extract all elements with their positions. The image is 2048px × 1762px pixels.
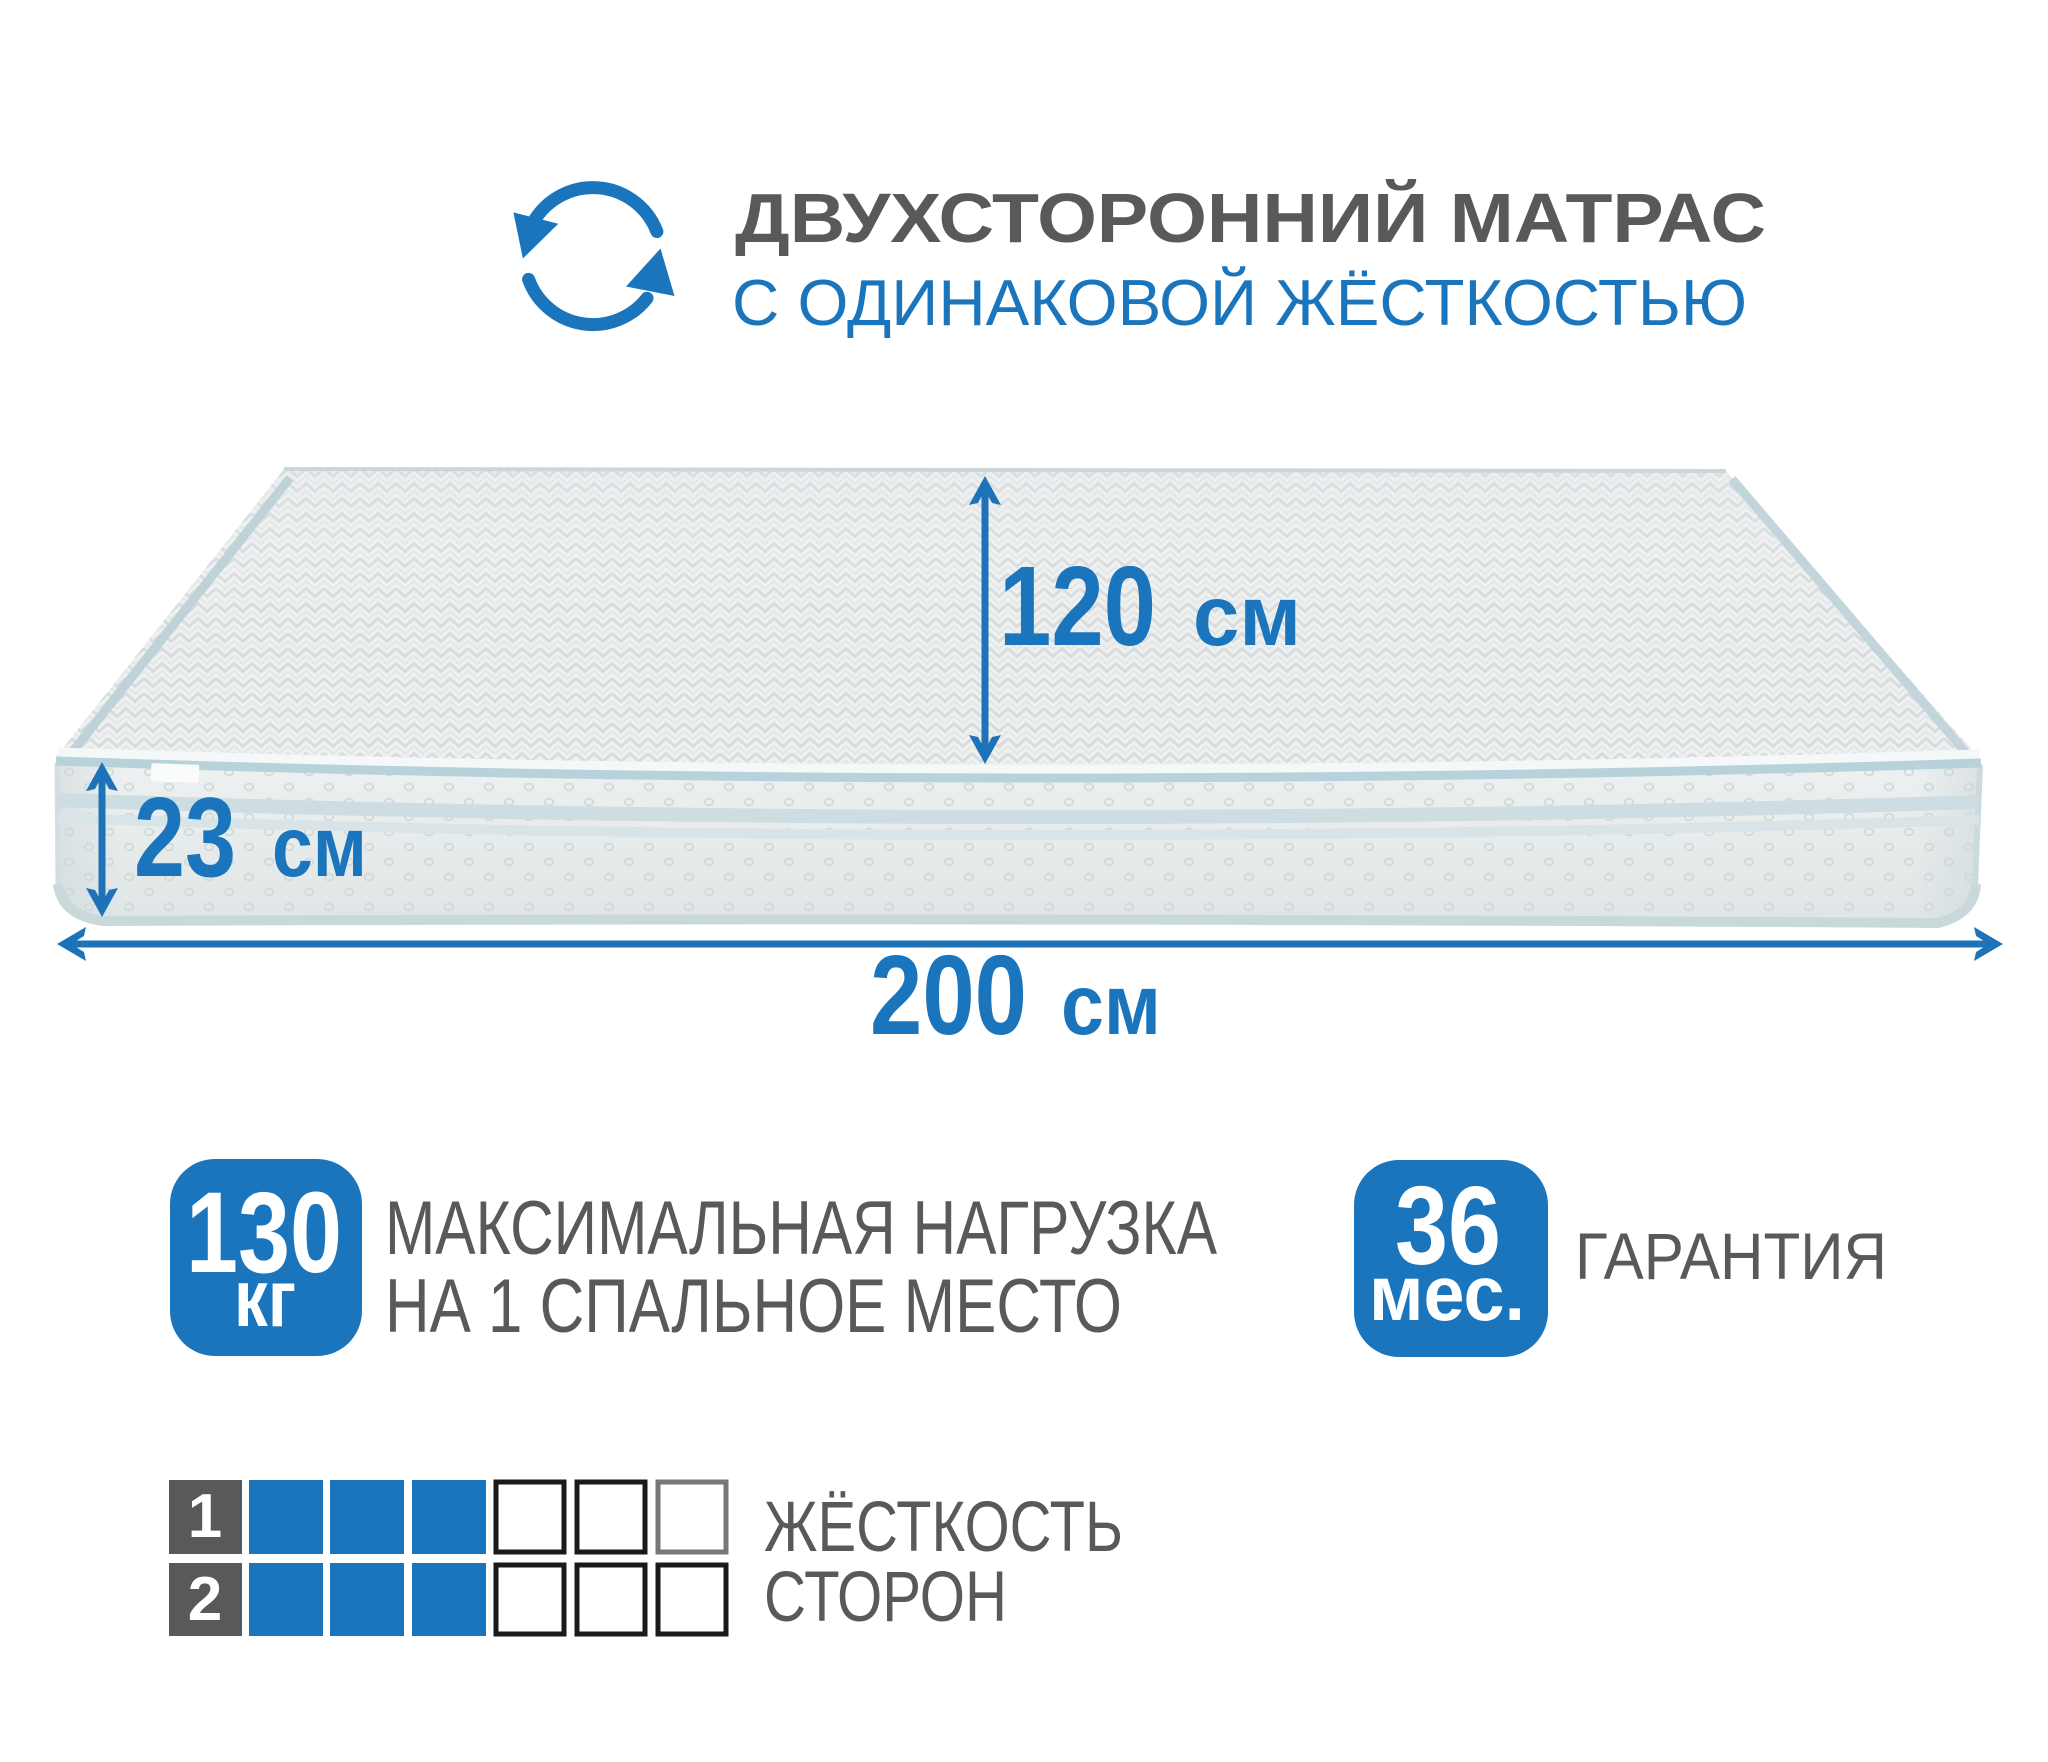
svg-text:ДВУХСТОРОННИЙ МАТРАС: ДВУХСТОРОННИЙ МАТРАС — [735, 178, 1766, 257]
svg-text:1: 1 — [188, 1482, 222, 1551]
svg-text:МАКСИМАЛЬНАЯ НАГРУЗКА: МАКСИМАЛЬНАЯ НАГРУЗКА — [385, 1186, 1217, 1271]
svg-text:120: 120 — [999, 543, 1156, 669]
svg-text:23: 23 — [134, 774, 236, 900]
svg-text:см: см — [1193, 569, 1301, 664]
svg-text:см: см — [1061, 958, 1161, 1053]
svg-text:200: 200 — [870, 932, 1027, 1058]
svg-text:кг: кг — [234, 1254, 296, 1344]
svg-text:С ОДИНАКОВОЙ ЖЁСТКОСТЬЮ: С ОДИНАКОВОЙ ЖЁСТКОСТЬЮ — [732, 266, 1747, 339]
svg-text:ГАРАНТИЯ: ГАРАНТИЯ — [1575, 1219, 1887, 1293]
svg-text:мес.: мес. — [1369, 1249, 1525, 1337]
svg-text:ЖЁСТКОСТЬ: ЖЁСТКОСТЬ — [764, 1488, 1123, 1567]
svg-text:2: 2 — [188, 1565, 222, 1634]
svg-text:см: см — [272, 800, 367, 895]
svg-text:НА 1 СПАЛЬНОЕ МЕСТО: НА 1 СПАЛЬНОЕ МЕСТО — [385, 1264, 1122, 1349]
svg-text:СТОРОН: СТОРОН — [764, 1558, 1007, 1637]
